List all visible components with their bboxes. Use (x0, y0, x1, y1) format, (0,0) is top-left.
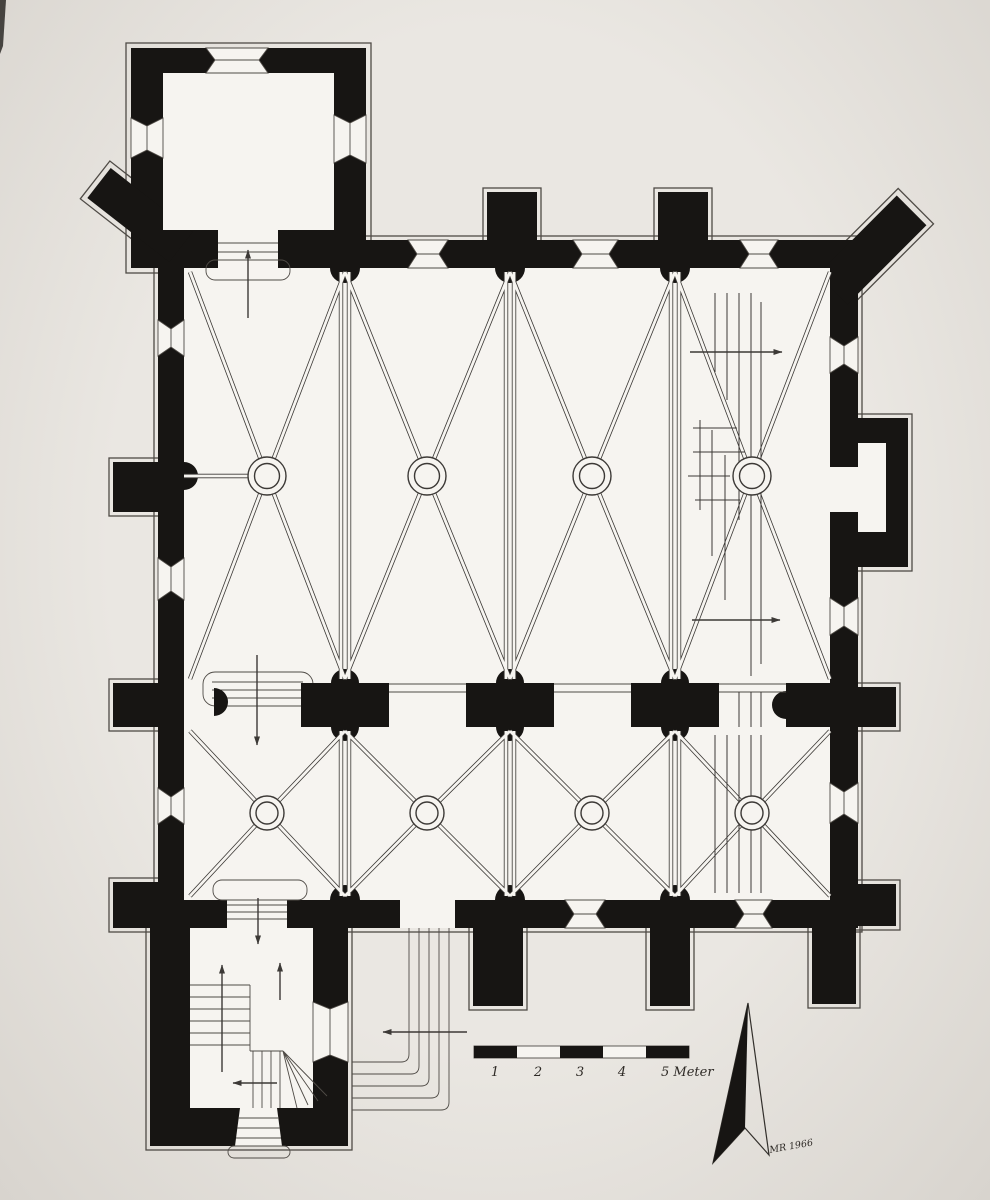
scale-bar: 1 2 3 4 5 Meter (474, 1046, 714, 1080)
scanned-page: 1 2 3 4 5 Meter MR 1966 (0, 0, 990, 1200)
annex-niche (858, 443, 886, 532)
north-arrow-icon (713, 1003, 769, 1163)
annex-opening (830, 467, 858, 512)
scale-label: 4 (617, 1065, 626, 1080)
gallery-outline-lines (352, 928, 449, 1110)
porch-floor (190, 928, 313, 1108)
south-wall-gap (400, 900, 455, 928)
south-buttress (473, 928, 523, 1006)
tower-room-floor (163, 73, 334, 230)
east-buttress (856, 884, 896, 926)
scale-label: 2 (533, 1065, 542, 1080)
scale-label: 3 (576, 1065, 584, 1080)
south-buttress (650, 928, 690, 1006)
scan-edge-artifact (0, 0, 6, 54)
west-buttress (113, 462, 158, 512)
arcade-east-respond (786, 683, 830, 727)
scale-unit-label: 5 Meter (661, 1065, 714, 1080)
north-buttress (487, 192, 537, 242)
north-buttress (658, 192, 708, 242)
scale-label: 1 (491, 1065, 499, 1080)
signature: MR 1966 (768, 1137, 814, 1156)
south-buttress (812, 928, 856, 1004)
arcade-pier (301, 683, 389, 727)
floor-plan-drawing: 1 2 3 4 5 Meter MR 1966 (0, 0, 990, 1200)
arcade-pier (631, 683, 719, 727)
west-buttress (113, 683, 158, 727)
arcade-pier (466, 683, 554, 727)
east-buttress (858, 687, 896, 727)
